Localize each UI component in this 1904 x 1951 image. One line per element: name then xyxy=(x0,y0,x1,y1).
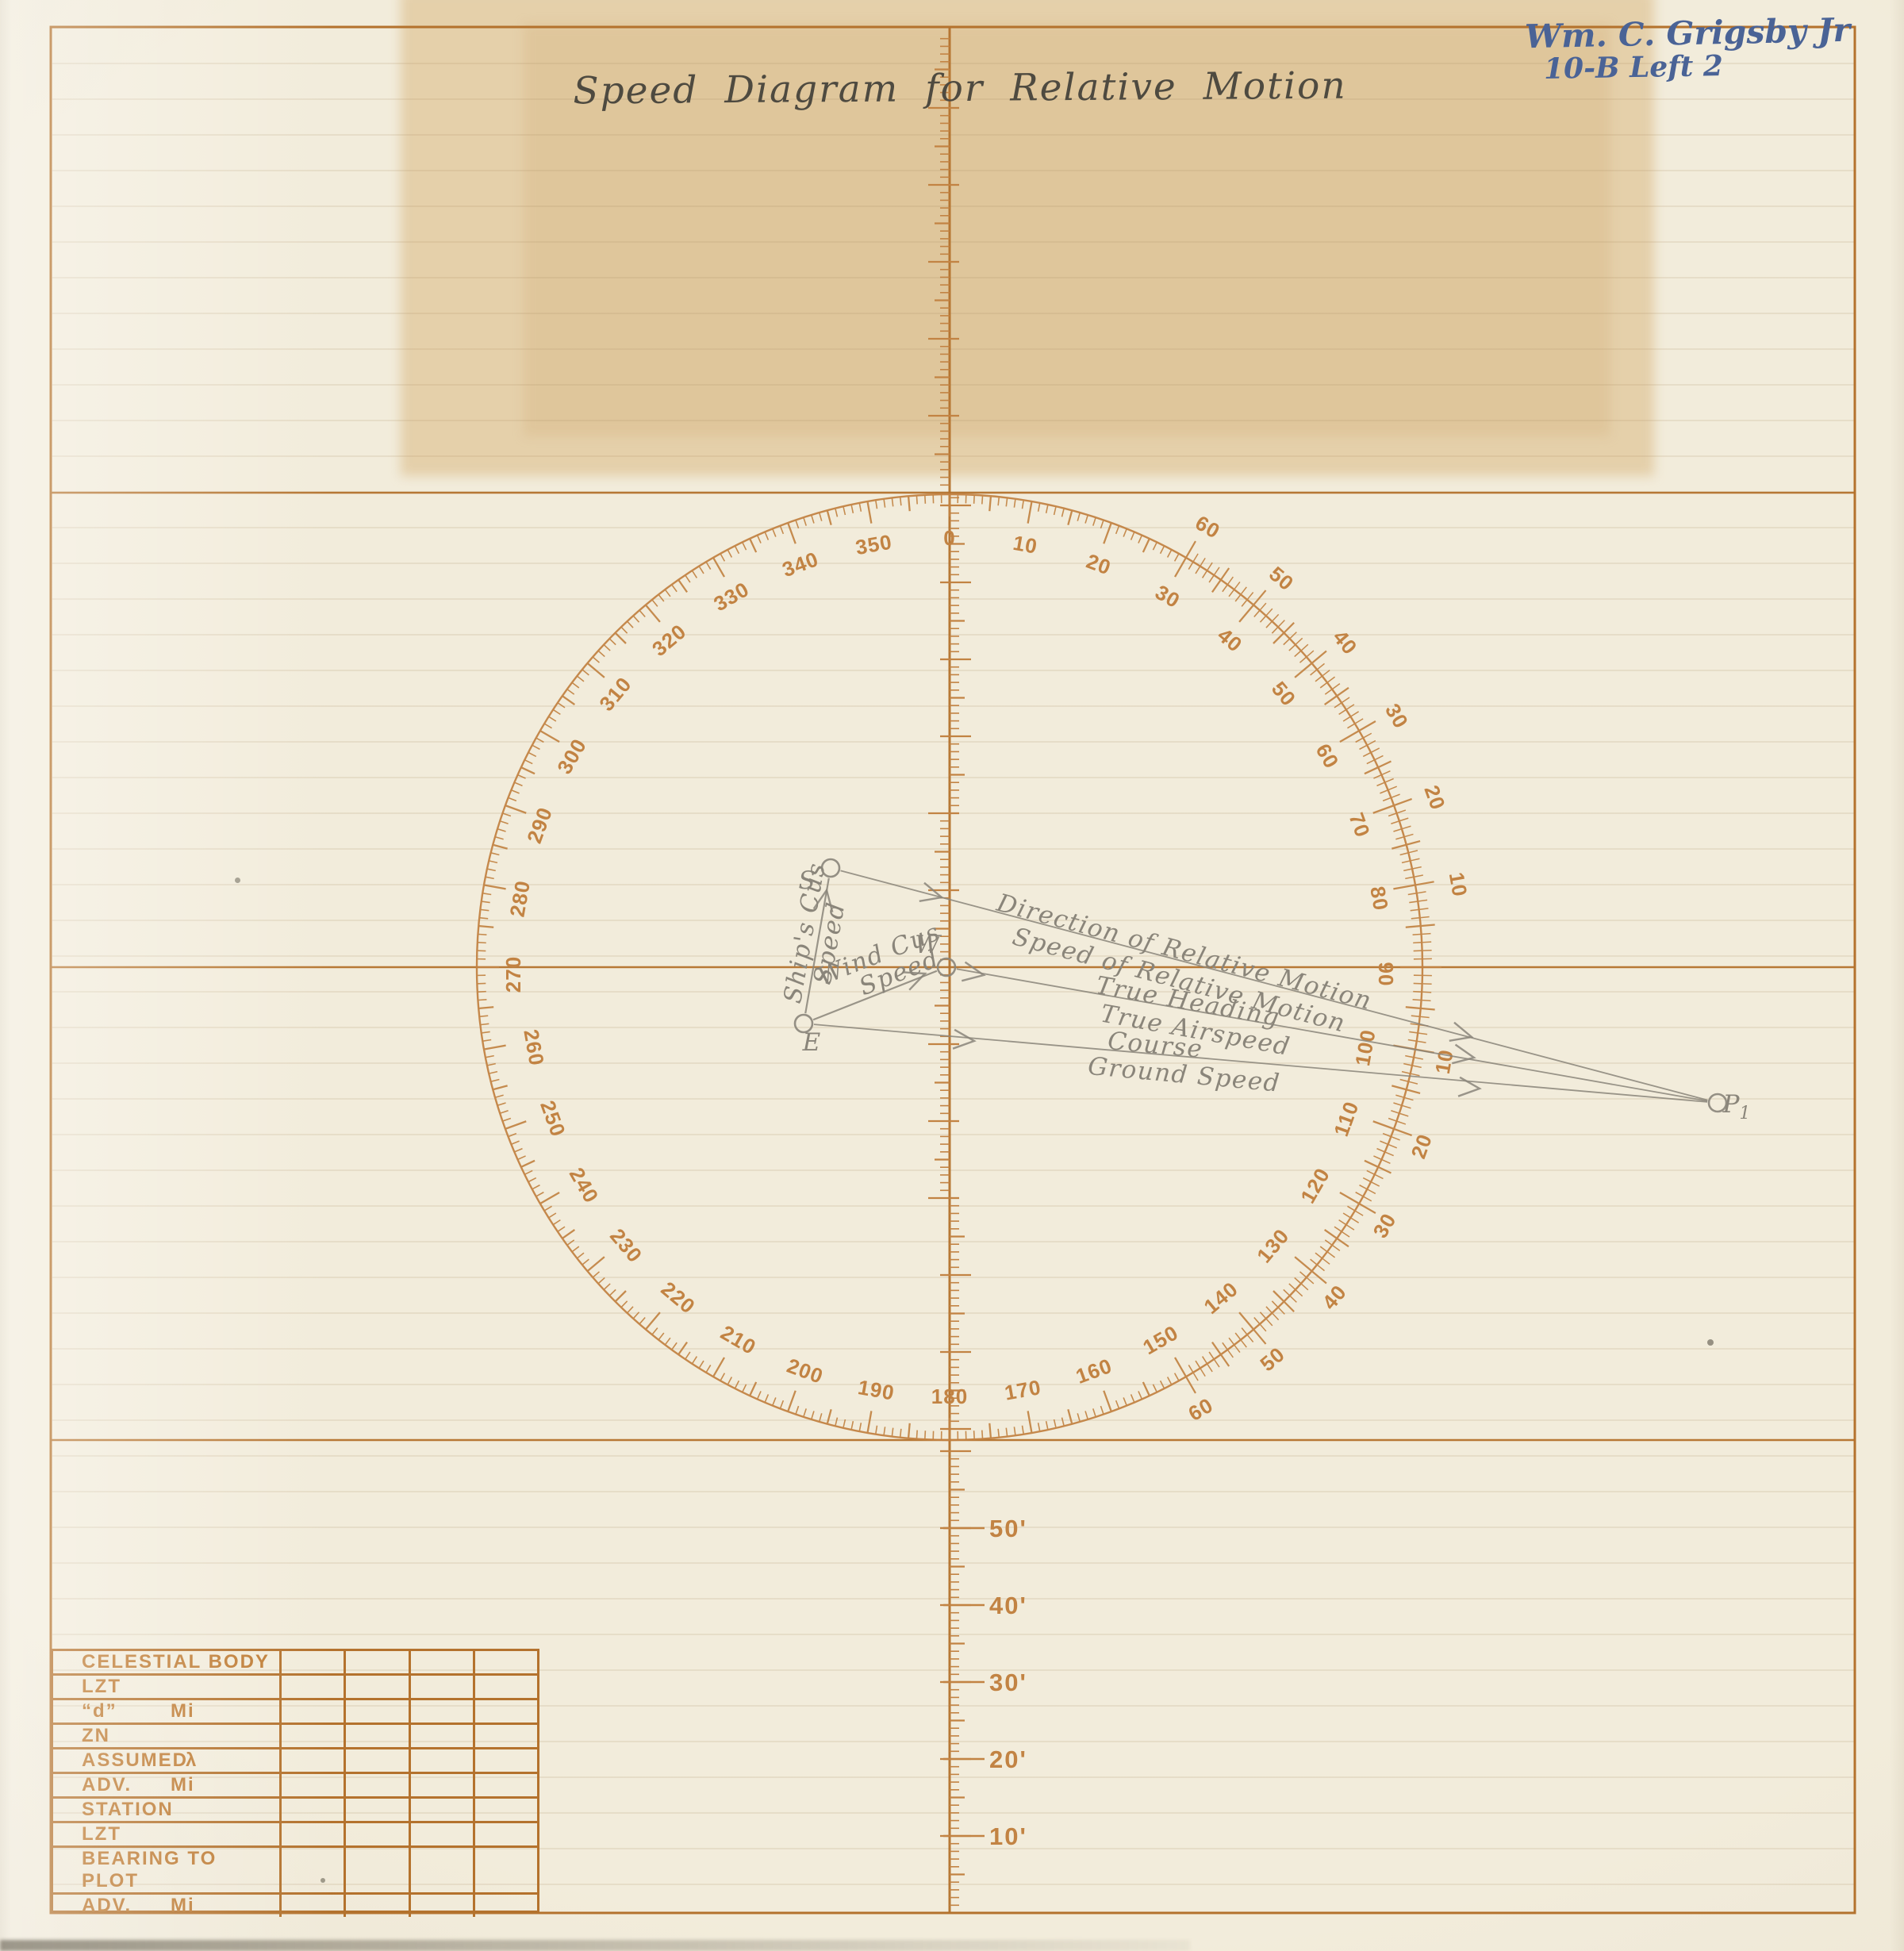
table-empty-cell xyxy=(282,1848,346,1892)
printed-label: 30' xyxy=(989,1669,1027,1696)
table-empty-cell xyxy=(346,1651,410,1673)
table-row-label: “d”Mi xyxy=(53,1700,282,1722)
table-row-label: BEARING TO PLOT xyxy=(53,1848,282,1892)
table-empty-cell xyxy=(346,1676,410,1698)
table-empty-cell xyxy=(475,1823,537,1845)
printed-label: 230 xyxy=(605,1224,647,1268)
celestial-body-table: CELESTIAL BODYLZT“d”MiZNASSUMEDλADV.MiST… xyxy=(51,1649,539,1913)
pencil-speed-diagram: SWEP1Ship's CusSpeedWind CusSpeedDirecti… xyxy=(778,859,1750,1123)
printed-label: 60 xyxy=(1192,510,1225,543)
table-row-label: ADV.Mi xyxy=(53,1774,282,1796)
table-empty-cell xyxy=(346,1774,410,1796)
printed-label: 60 xyxy=(1311,739,1344,773)
printed-label: 60 xyxy=(1184,1392,1218,1425)
pencil-arrowhead xyxy=(962,962,985,985)
printed-label: 40 xyxy=(1328,625,1362,659)
printed-label: 120 xyxy=(1296,1163,1334,1207)
printed-label: 40 xyxy=(1317,1280,1351,1314)
table-row-label: LZT xyxy=(53,1823,282,1845)
table-row: BEARING TO PLOT xyxy=(53,1845,537,1892)
printed-label: 10 xyxy=(1445,870,1472,899)
paper-speck xyxy=(1707,1339,1714,1346)
table-row-label: CELESTIAL BODY xyxy=(53,1651,282,1673)
printed-label: 10' xyxy=(989,1822,1027,1850)
printed-label: 40 xyxy=(1213,623,1247,657)
printed-label: 220 xyxy=(657,1277,701,1319)
table-row-label: ADV.Mi xyxy=(53,1895,282,1917)
table-empty-cell xyxy=(411,1725,475,1747)
table-empty-cell xyxy=(475,1895,537,1917)
table-empty-cell xyxy=(475,1651,537,1673)
printed-label: 30 xyxy=(1380,700,1413,733)
table-empty-cell xyxy=(346,1823,410,1845)
printed-label: 20 xyxy=(1083,549,1114,580)
printed-label: 270 xyxy=(501,956,525,993)
table-empty-cell xyxy=(411,1774,475,1796)
table-empty-cell xyxy=(411,1700,475,1722)
printed-label: 20' xyxy=(989,1746,1027,1773)
scan-bottom-edge-shadow xyxy=(0,1940,1190,1951)
pencil-point-label-E: E xyxy=(802,1028,821,1057)
printed-label: 40' xyxy=(989,1592,1027,1619)
table-empty-cell xyxy=(282,1700,346,1722)
table-empty-cell xyxy=(282,1749,346,1772)
table-empty-cell xyxy=(475,1749,537,1772)
printed-label: 190 xyxy=(856,1375,896,1405)
printed-label: 50 xyxy=(1265,562,1299,596)
table-empty-cell xyxy=(282,1676,346,1698)
table-empty-cell xyxy=(475,1848,537,1892)
printed-label: 50 xyxy=(1267,677,1301,711)
table-row-label: ASSUMEDλ xyxy=(53,1749,282,1772)
printed-label: 180 xyxy=(931,1385,968,1408)
author-class-line: 10-B Left 2 xyxy=(1544,49,1724,86)
table-empty-cell xyxy=(411,1799,475,1821)
table-empty-cell xyxy=(346,1799,410,1821)
printed-label: 290 xyxy=(522,804,557,847)
pencil-point-label-P1: P1 xyxy=(1722,1090,1751,1123)
table-row: LZT xyxy=(53,1821,537,1845)
printed-label: 140 xyxy=(1200,1277,1243,1319)
printed-label: 210 xyxy=(716,1320,760,1359)
table-row-unit: Mi xyxy=(171,1774,195,1796)
printed-label: 100 xyxy=(1350,1027,1380,1068)
printed-label: 200 xyxy=(784,1354,827,1388)
printed-label: 10 xyxy=(1430,1047,1458,1076)
printed-label: 260 xyxy=(519,1027,549,1068)
table-empty-cell xyxy=(282,1799,346,1821)
pencil-arrowhead xyxy=(953,1030,975,1050)
table-empty-cell xyxy=(411,1749,475,1772)
table-row: STATION xyxy=(53,1796,537,1821)
paper-speck xyxy=(321,1878,325,1883)
printed-label: 240 xyxy=(565,1163,604,1207)
printed-label: 160 xyxy=(1073,1354,1115,1388)
table-empty-cell xyxy=(411,1848,475,1892)
table-empty-cell xyxy=(411,1895,475,1917)
printed-label: 150 xyxy=(1138,1320,1182,1359)
printed-label: 10 xyxy=(1011,531,1040,559)
pencil-annotation-ship-course-vector: Ship's CusSpeed xyxy=(778,860,857,1010)
table-empty-cell xyxy=(475,1774,537,1796)
table-empty-cell xyxy=(282,1725,346,1747)
printed-label: 340 xyxy=(779,547,822,582)
printed-label: 90 xyxy=(1374,962,1398,987)
printed-label: 30 xyxy=(1151,580,1184,613)
table-empty-cell xyxy=(346,1848,410,1892)
table-row: “d”Mi xyxy=(53,1698,537,1722)
table-row-label: STATION xyxy=(53,1799,282,1821)
pencil-arrowhead xyxy=(1449,1023,1474,1047)
printed-label: 30 xyxy=(1368,1209,1400,1242)
table-row-unit: Mi xyxy=(171,1895,195,1917)
table-row: ZN xyxy=(53,1722,537,1747)
printed-label: 310 xyxy=(594,672,636,716)
table-empty-cell xyxy=(475,1799,537,1821)
table-row: LZT xyxy=(53,1673,537,1698)
table-empty-cell xyxy=(475,1725,537,1747)
table-empty-cell xyxy=(282,1651,346,1673)
printed-label: 280 xyxy=(505,878,535,919)
table-empty-cell xyxy=(282,1774,346,1796)
table-empty-cell xyxy=(282,1823,346,1845)
paper-speck xyxy=(235,878,240,883)
printed-label: 350 xyxy=(854,530,894,560)
printed-label: 330 xyxy=(709,577,753,616)
table-empty-cell xyxy=(346,1700,410,1722)
table-row-label: LZT xyxy=(53,1676,282,1698)
table-empty-cell xyxy=(282,1895,346,1917)
table-empty-cell xyxy=(346,1725,410,1747)
printed-label: 50 xyxy=(1255,1342,1289,1376)
table-empty-cell xyxy=(346,1749,410,1772)
table-empty-cell xyxy=(475,1676,537,1698)
printed-label: 130 xyxy=(1252,1224,1294,1268)
sheet-border-and-section-lines xyxy=(51,27,1855,1913)
printed-label: 50' xyxy=(989,1515,1027,1542)
table-row-label: ZN xyxy=(53,1725,282,1747)
printed-label: 80 xyxy=(1365,885,1393,913)
table-row: ADV.Mi xyxy=(53,1772,537,1796)
table-row-unit: λ xyxy=(186,1749,198,1772)
table-empty-cell xyxy=(411,1651,475,1673)
printed-label: 20 xyxy=(1419,782,1450,813)
table-empty-cell xyxy=(475,1700,537,1722)
printed-label: 320 xyxy=(647,619,691,661)
table-empty-cell xyxy=(411,1676,475,1698)
table-row: CELESTIAL BODY xyxy=(53,1651,537,1673)
handwritten-title: Speed Diagram for Relative Motion xyxy=(555,63,1365,113)
table-row: ASSUMEDλ xyxy=(53,1747,537,1772)
table-empty-cell xyxy=(411,1823,475,1845)
table-row: ADV.Mi xyxy=(53,1892,537,1917)
table-empty-cell xyxy=(346,1895,410,1917)
plotting-sheet-page: 10'20'30'40'50'0102030405060708090100110… xyxy=(0,0,1904,1951)
printed-label: 0 xyxy=(943,526,955,550)
printed-label: 110 xyxy=(1329,1098,1364,1140)
printed-label: 70 xyxy=(1344,809,1375,840)
printed-label: 170 xyxy=(1003,1375,1043,1405)
printed-label: 250 xyxy=(535,1097,570,1140)
table-row-unit: Mi xyxy=(171,1700,195,1722)
